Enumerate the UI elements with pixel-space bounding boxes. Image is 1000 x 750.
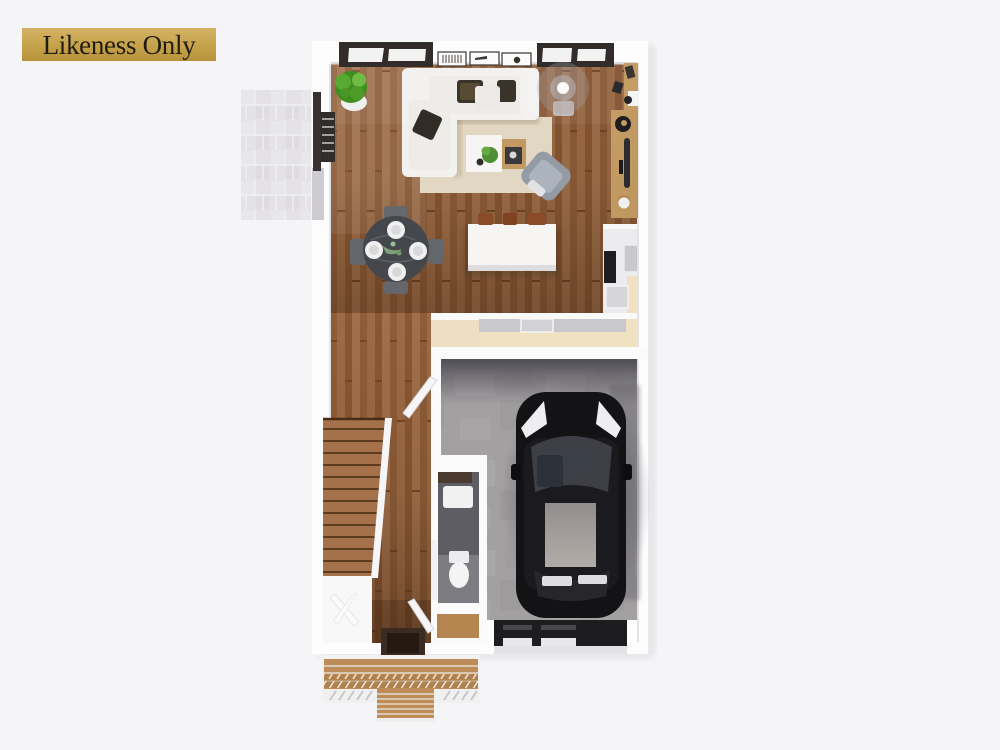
svg-text:Likeness Only: Likeness Only <box>43 30 197 60</box>
